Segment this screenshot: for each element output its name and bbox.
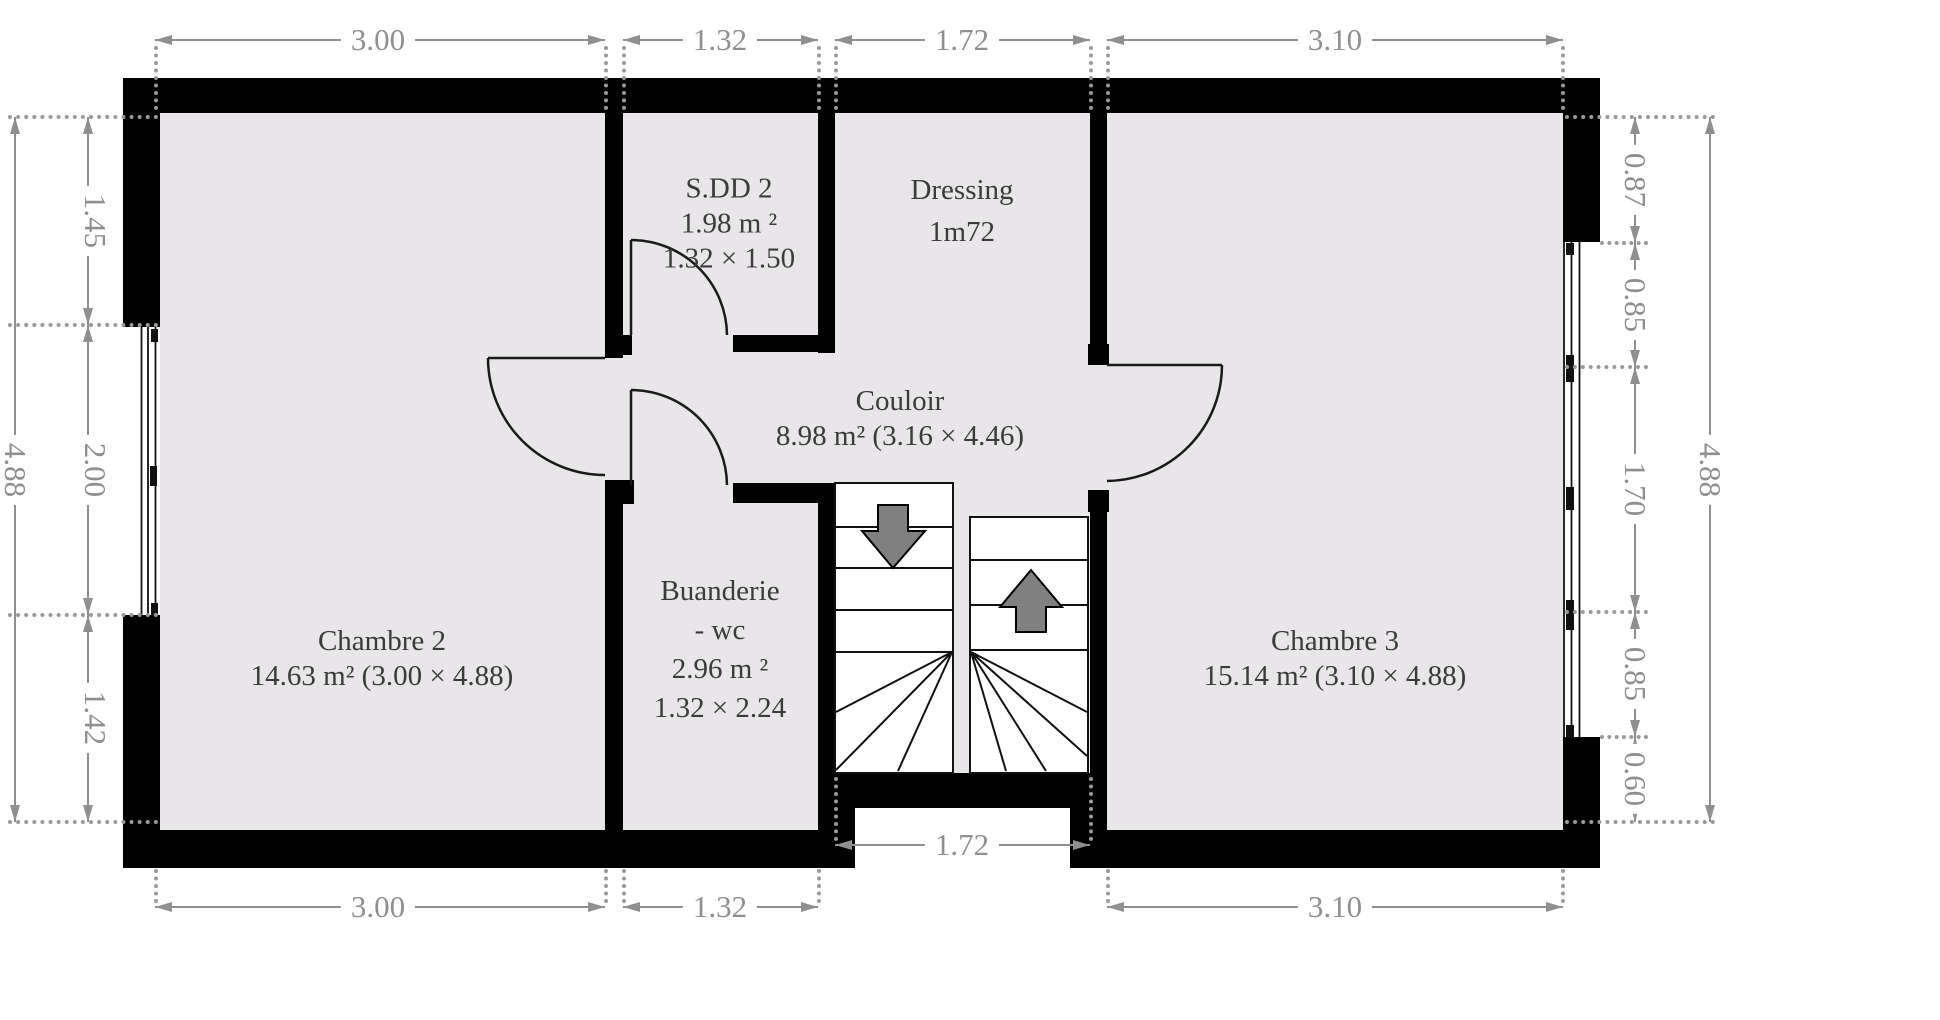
dim-arrow xyxy=(623,902,640,912)
dim-label-left-2: 1.42 xyxy=(77,683,113,753)
dim-tick xyxy=(1600,735,1648,739)
dim-tick xyxy=(622,46,626,110)
room-label-sdd2: S.DD 2 1.98 m ² 1.32 × 1.50 xyxy=(663,172,795,277)
room-area: 14.63 m² (3.00 × 4.88) xyxy=(251,659,514,694)
dim-arrow xyxy=(1107,902,1124,912)
window-mullion-marker xyxy=(1566,487,1574,510)
dim-arrow xyxy=(801,35,818,45)
dim-label-right-1: 0.85 xyxy=(1617,270,1653,340)
dim-arrow xyxy=(1630,117,1640,134)
wall-jamb xyxy=(605,335,632,355)
room-label-couloir: Couloir 8.98 m² (3.16 × 4.46) xyxy=(776,384,1024,454)
window-mullion-marker xyxy=(1566,725,1574,737)
dim-arrow xyxy=(588,35,605,45)
floor-area xyxy=(160,113,1563,830)
window-mullion-marker xyxy=(151,329,158,342)
wall-chambre2-lower xyxy=(605,480,623,830)
dim-arrow xyxy=(1107,35,1124,45)
dim-label-left-1: 2.00 xyxy=(77,435,113,505)
room-name: S.DD 2 xyxy=(663,172,795,207)
dim-arrow xyxy=(155,35,172,45)
room-area: 15.14 m² (3.10 × 4.88) xyxy=(1204,659,1467,694)
dim-arrow xyxy=(588,902,605,912)
dim-tick xyxy=(8,613,158,617)
dim-tick xyxy=(1089,777,1093,841)
dim-label-right-0: 0.87 xyxy=(1617,145,1653,215)
floor-plan: 3.00 1.32 1.72 3.10 3.00 1.32 3.10 1.72 … xyxy=(0,0,1940,1020)
dim-arrow xyxy=(1705,117,1715,134)
dim-tick xyxy=(1561,46,1565,110)
dim-label-bottom-2: 3.10 xyxy=(1298,889,1372,925)
wall-jamb xyxy=(1088,344,1109,365)
wall-bottom-right xyxy=(1070,830,1600,868)
dim-tick xyxy=(1089,46,1093,110)
dim-label-right-4: 0.60 xyxy=(1617,744,1653,814)
dim-tick xyxy=(604,46,608,110)
dim-arrow xyxy=(10,117,20,134)
dim-label-bottom-1: 1.32 xyxy=(683,889,757,925)
dim-tick xyxy=(154,46,158,110)
room-name2: - wc xyxy=(654,611,786,650)
dim-tick xyxy=(154,869,158,903)
dim-label-left-0: 1.45 xyxy=(77,186,113,256)
room-size: 1.32 × 1.50 xyxy=(663,242,795,277)
dim-arrow xyxy=(801,902,818,912)
dim-label-top-3: 3.10 xyxy=(1298,22,1372,58)
room-label-dressing: Dressing 1m72 xyxy=(910,169,1013,253)
wall-jamb xyxy=(605,480,634,504)
dim-label-top-1: 1.32 xyxy=(683,22,757,58)
dim-tick xyxy=(1106,46,1110,110)
dim-tick xyxy=(834,46,838,110)
dim-tick xyxy=(1565,115,1715,119)
dim-label-stair-opening: 1.72 xyxy=(925,827,999,863)
dim-label-right-2: 1.70 xyxy=(1617,454,1653,524)
dim-arrow xyxy=(83,615,93,632)
room-area: 8.98 m² (3.16 × 4.46) xyxy=(776,419,1024,454)
room-area: 2.96 m ² xyxy=(654,650,786,689)
dim-tick xyxy=(8,323,158,327)
dim-tick xyxy=(1561,869,1565,903)
dim-tick xyxy=(1106,869,1110,903)
dim-label-left-outer: 4.88 xyxy=(0,435,33,505)
dim-arrow xyxy=(1630,612,1640,629)
dim-arrow xyxy=(623,35,640,45)
dim-tick xyxy=(817,46,821,110)
dim-tick xyxy=(622,869,626,903)
wall-chambre2-upper xyxy=(605,113,623,358)
room-label-chambre2: Chambre 2 14.63 m² (3.00 × 4.88) xyxy=(251,624,514,694)
dim-tick xyxy=(1565,365,1648,369)
room-name: Couloir xyxy=(776,384,1024,419)
wall-chambre3-upper xyxy=(1090,113,1107,365)
dim-arrow xyxy=(1073,35,1090,45)
dim-arrow xyxy=(835,840,852,850)
dim-arrow xyxy=(1630,243,1640,260)
room-label-chambre3: Chambre 3 15.14 m² (3.10 × 4.88) xyxy=(1204,624,1467,694)
room-label-buanderie: Buanderie - wc 2.96 m ² 1.32 × 2.24 xyxy=(654,572,786,728)
wall-bottom-left xyxy=(123,830,855,868)
window-mullion-marker xyxy=(1566,243,1574,255)
dim-label-top-2: 1.72 xyxy=(925,22,999,58)
dim-tick xyxy=(1565,820,1715,824)
wall-sdd2-dressing xyxy=(818,113,835,353)
room-area: 1.98 m ² xyxy=(663,207,795,242)
dim-arrow xyxy=(83,325,93,342)
dim-tick xyxy=(8,820,158,824)
wall-jamb xyxy=(1088,490,1109,512)
dim-label-bottom-0: 3.00 xyxy=(341,889,415,925)
room-size: 1m72 xyxy=(910,211,1013,253)
dim-tick xyxy=(817,869,821,903)
room-name: Chambre 3 xyxy=(1204,624,1467,659)
dim-arrow xyxy=(155,902,172,912)
room-size: 1.32 × 2.24 xyxy=(654,689,786,728)
dim-arrow xyxy=(1546,902,1563,912)
room-name: Dressing xyxy=(910,169,1013,211)
window-mullion-marker xyxy=(150,466,157,486)
dim-label-right-3: 0.85 xyxy=(1617,639,1653,709)
wall-right-upper xyxy=(1563,78,1600,242)
room-name: Buanderie xyxy=(654,572,786,611)
wall-couloir-bottom xyxy=(733,483,833,503)
window-mullion-marker xyxy=(1566,600,1574,630)
dim-label-top-0: 3.00 xyxy=(341,22,415,58)
wall-top xyxy=(123,78,1600,113)
dim-tick xyxy=(1565,610,1648,614)
dim-arrow xyxy=(1546,35,1563,45)
room-name: Chambre 2 xyxy=(251,624,514,659)
dim-arrow xyxy=(835,35,852,45)
dim-arrow xyxy=(1073,840,1090,850)
dim-arrow xyxy=(83,117,93,134)
dim-tick xyxy=(8,115,158,119)
dim-tick xyxy=(604,869,608,903)
dim-label-right-outer: 4.88 xyxy=(1692,435,1728,505)
dim-arrow xyxy=(1630,367,1640,384)
dim-tick xyxy=(834,777,838,841)
dim-tick xyxy=(1600,241,1648,245)
